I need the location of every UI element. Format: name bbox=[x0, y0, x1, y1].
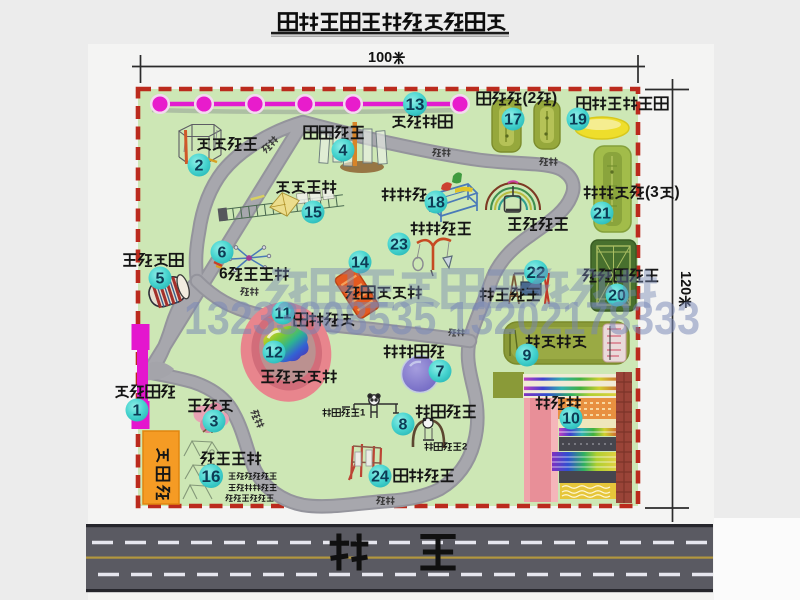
svg-text:19: 19 bbox=[569, 112, 587, 129]
svg-text:6: 6 bbox=[219, 266, 228, 283]
svg-text:16: 16 bbox=[202, 467, 221, 486]
svg-text:(2: (2 bbox=[523, 90, 537, 107]
svg-text:(3: (3 bbox=[645, 184, 659, 201]
svg-text:100: 100 bbox=[368, 50, 392, 66]
svg-text:1: 1 bbox=[133, 403, 142, 420]
svg-text:9: 9 bbox=[523, 348, 532, 365]
svg-text:12: 12 bbox=[265, 345, 283, 362]
svg-text:14: 14 bbox=[351, 255, 369, 272]
svg-text:13233808535 13202178333: 13233808535 13202178333 bbox=[184, 292, 700, 344]
svg-text:3: 3 bbox=[210, 414, 219, 431]
svg-text:2: 2 bbox=[462, 441, 467, 452]
svg-text:5: 5 bbox=[156, 271, 165, 288]
svg-text:24: 24 bbox=[371, 469, 389, 486]
svg-text:13: 13 bbox=[406, 95, 425, 114]
svg-text:7: 7 bbox=[436, 364, 445, 381]
svg-text:21: 21 bbox=[593, 206, 611, 223]
svg-text:1: 1 bbox=[360, 407, 366, 418]
svg-text:6: 6 bbox=[218, 245, 227, 262]
svg-text:4: 4 bbox=[339, 143, 348, 160]
svg-text:2: 2 bbox=[195, 158, 204, 175]
svg-text:23: 23 bbox=[390, 237, 408, 254]
svg-text:10: 10 bbox=[562, 411, 580, 428]
svg-text:): ) bbox=[552, 90, 557, 107]
svg-text:8: 8 bbox=[399, 417, 408, 434]
svg-text:18: 18 bbox=[427, 195, 445, 212]
svg-text:17: 17 bbox=[504, 112, 522, 129]
svg-text:15: 15 bbox=[304, 205, 322, 222]
svg-text:): ) bbox=[675, 184, 680, 201]
